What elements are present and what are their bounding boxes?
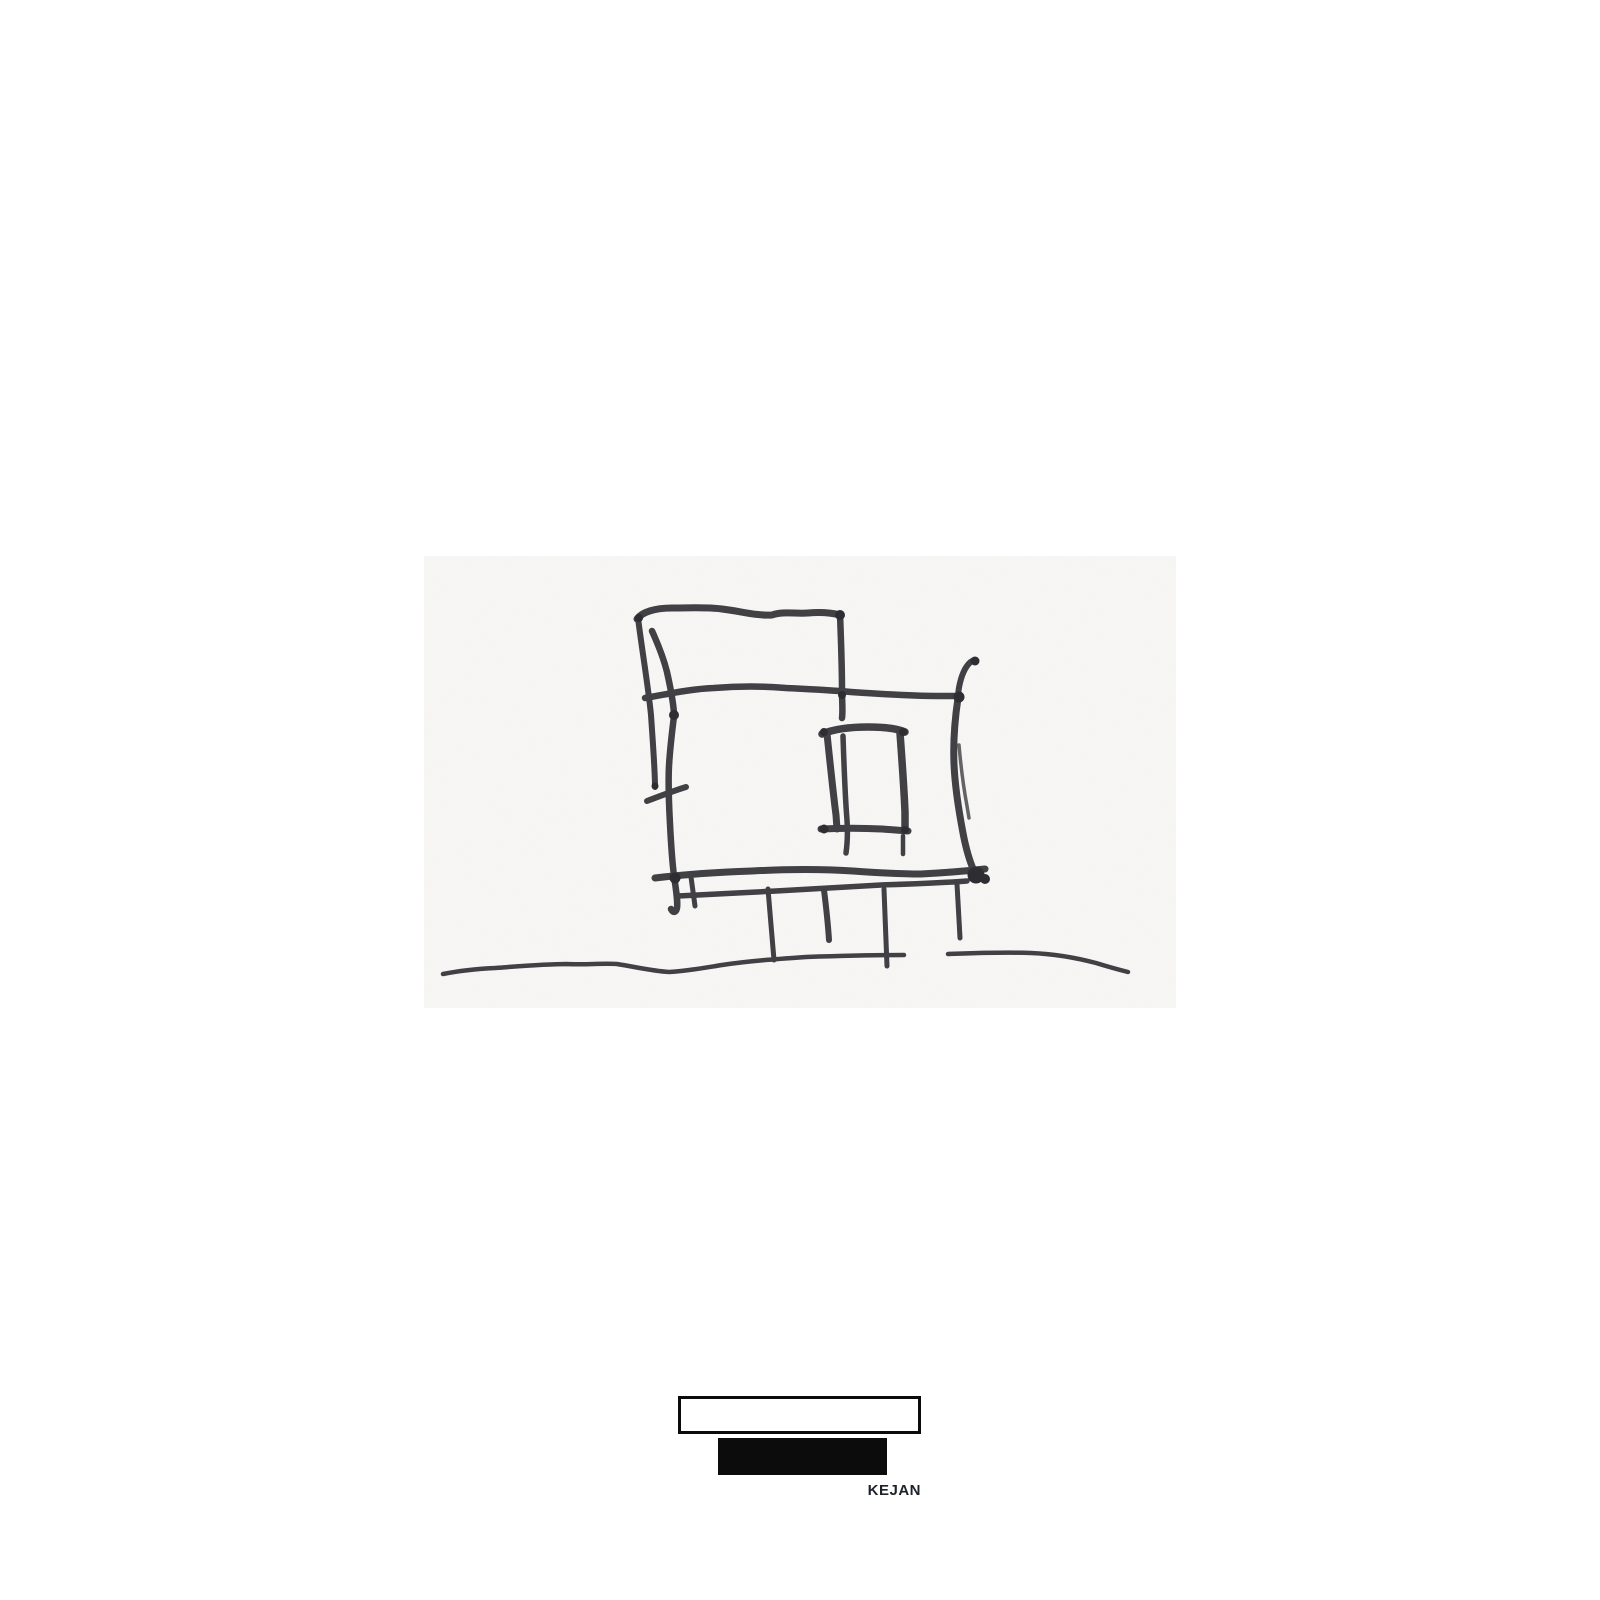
ink-knot: [838, 691, 846, 699]
ink-knot: [635, 614, 643, 622]
stroke-top-box-right-vertical: [840, 614, 842, 718]
brand-name: KEJAN: [678, 1482, 921, 1499]
logo-outline-box: [678, 1396, 921, 1434]
ink-knot: [901, 826, 909, 834]
paper-grain-texture: [424, 556, 1176, 1008]
ink-knot: [899, 728, 907, 736]
ink-knot: [652, 783, 659, 790]
ink-knot: [670, 873, 681, 884]
stroke-window-bottom: [821, 828, 908, 831]
ink-knot: [835, 610, 845, 620]
ink-knot: [820, 825, 829, 834]
house-sketch-drawing: [424, 556, 1176, 1008]
ink-knot: [971, 657, 980, 666]
logo-solid-box: [718, 1438, 887, 1475]
ink-knot: [954, 692, 965, 703]
artwork-canvas: KEJAN: [0, 0, 1600, 1600]
ink-knot: [980, 874, 990, 884]
ink-knot: [820, 728, 828, 736]
sketch-paper: [424, 556, 1176, 1008]
stroke-leg-4: [957, 884, 960, 938]
ink-knot: [669, 710, 679, 720]
